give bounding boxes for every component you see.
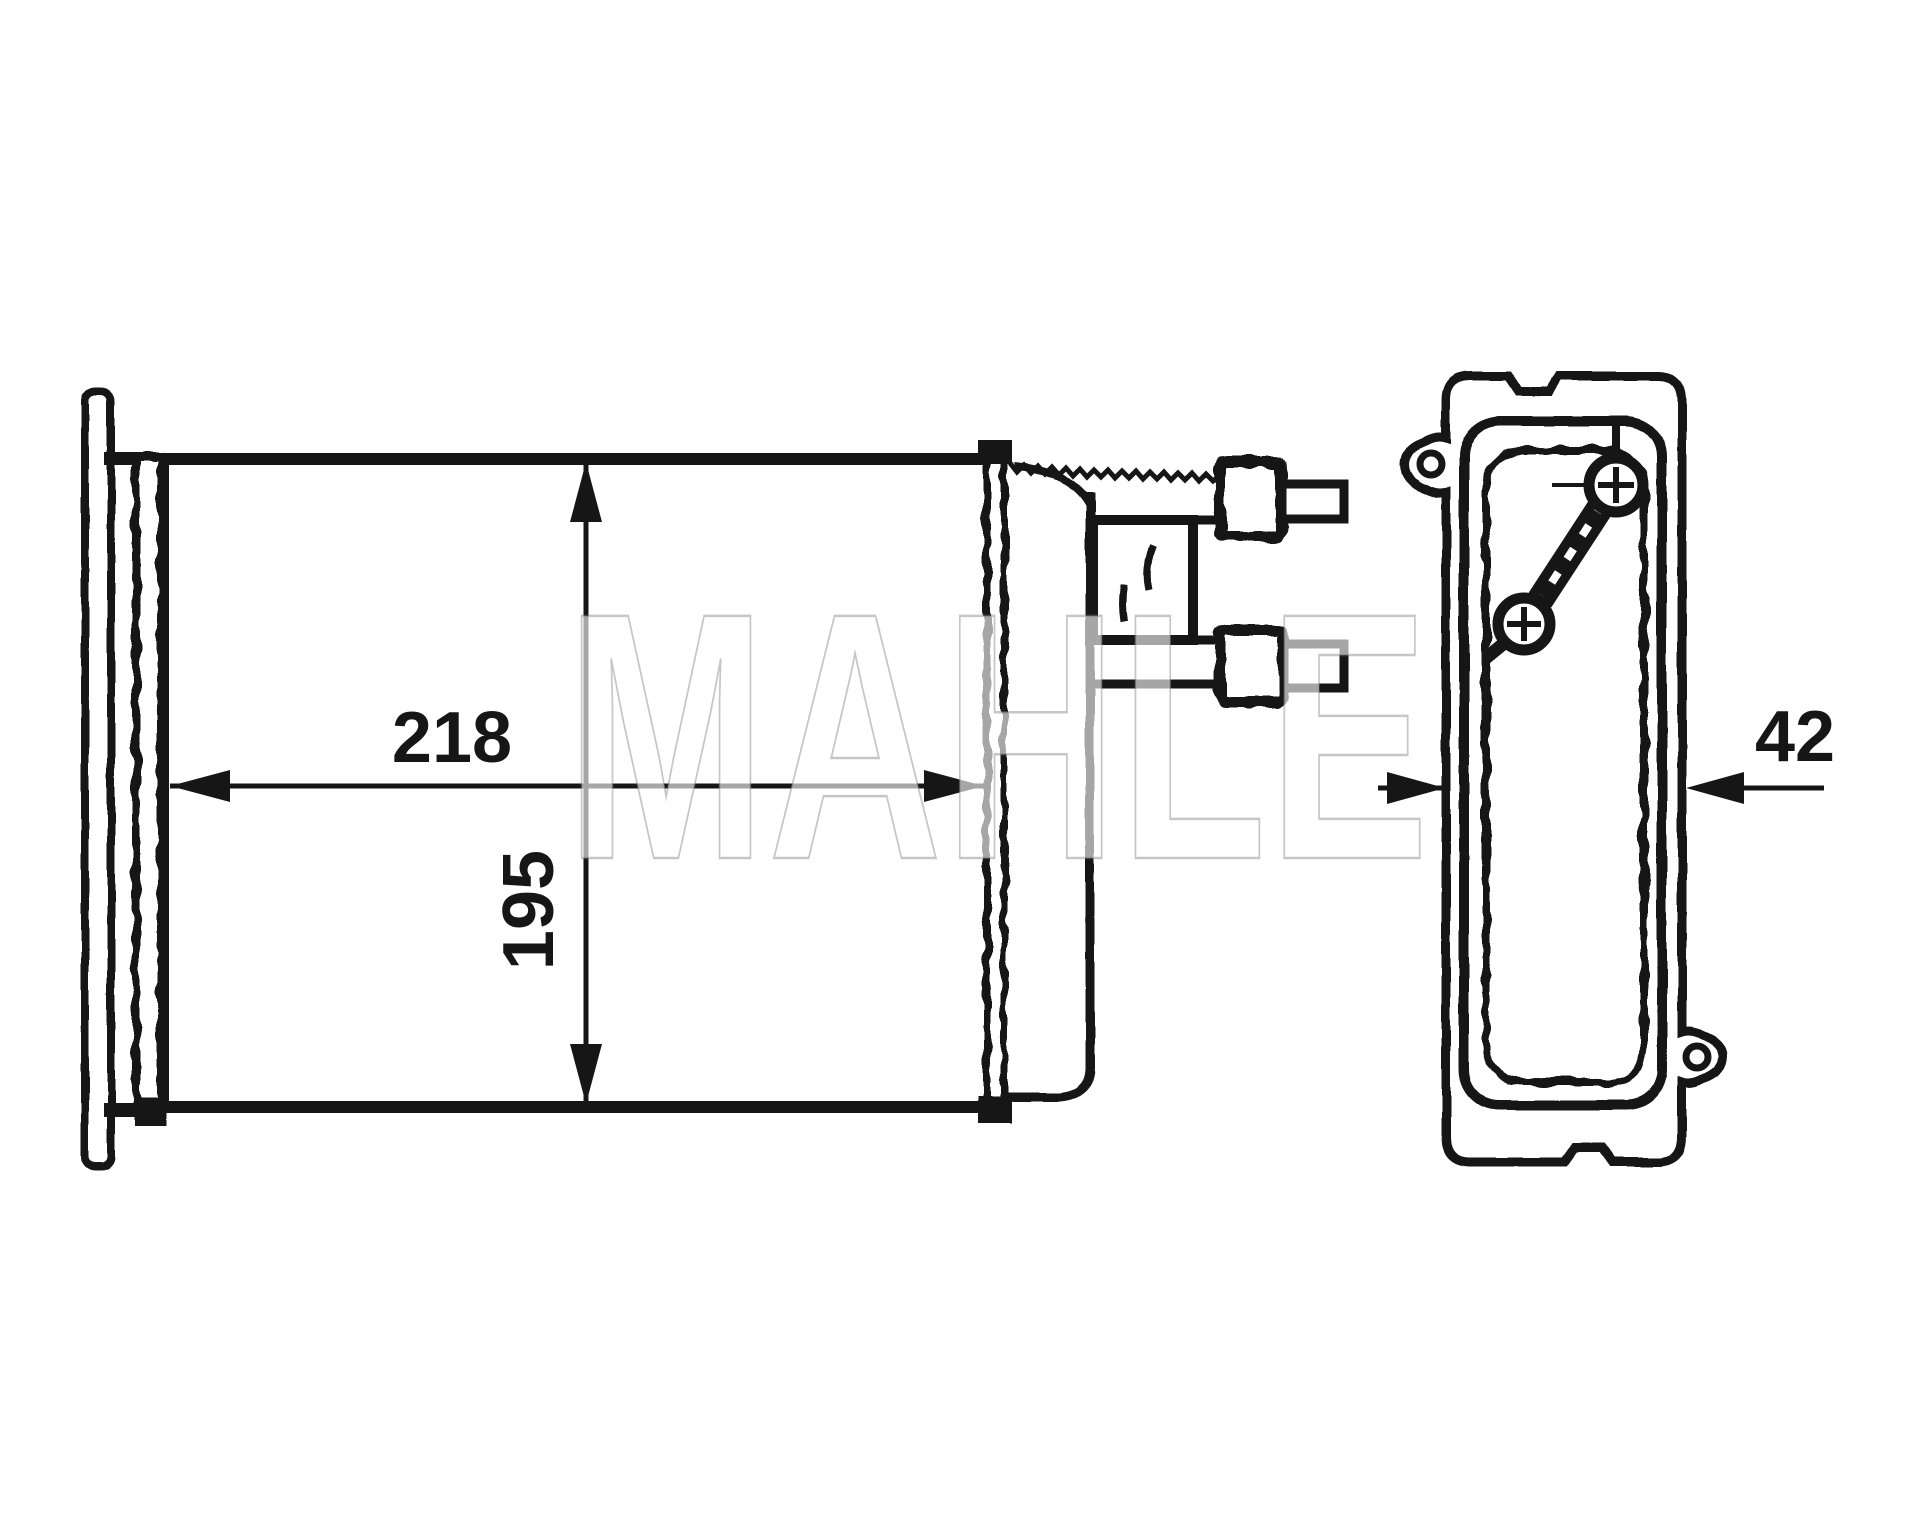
brand-watermark: MAHLE bbox=[566, 539, 1431, 933]
top-pipe-nut bbox=[1220, 462, 1282, 537]
end-view-outer-contour bbox=[1405, 376, 1723, 1162]
dim-length-arrow-left bbox=[170, 770, 230, 802]
dim-height-arrow-down bbox=[570, 1044, 602, 1104]
tank-serrated-top-edge bbox=[1010, 463, 1220, 481]
technical-drawing: 218 195 42 MAH bbox=[0, 0, 1920, 1536]
gasket-strip bbox=[136, 458, 161, 1108]
mounting-hole-bottom-right bbox=[1686, 1046, 1708, 1068]
mounting-hole-top-left bbox=[1420, 453, 1442, 475]
top-pipe-end-tube bbox=[1282, 484, 1344, 519]
dim-height-arrow-up bbox=[570, 462, 602, 522]
end-view bbox=[1405, 376, 1723, 1162]
dim-height-label: 195 bbox=[489, 850, 569, 970]
dim-depth-label: 42 bbox=[1755, 697, 1835, 777]
drawing-svg: 218 195 42 MAH bbox=[0, 0, 1920, 1536]
dim-depth-arrow-right bbox=[1686, 772, 1744, 804]
dim-length-label: 218 bbox=[392, 698, 512, 778]
seam-top-cap bbox=[978, 440, 1012, 464]
flange-plate bbox=[85, 391, 111, 1167]
